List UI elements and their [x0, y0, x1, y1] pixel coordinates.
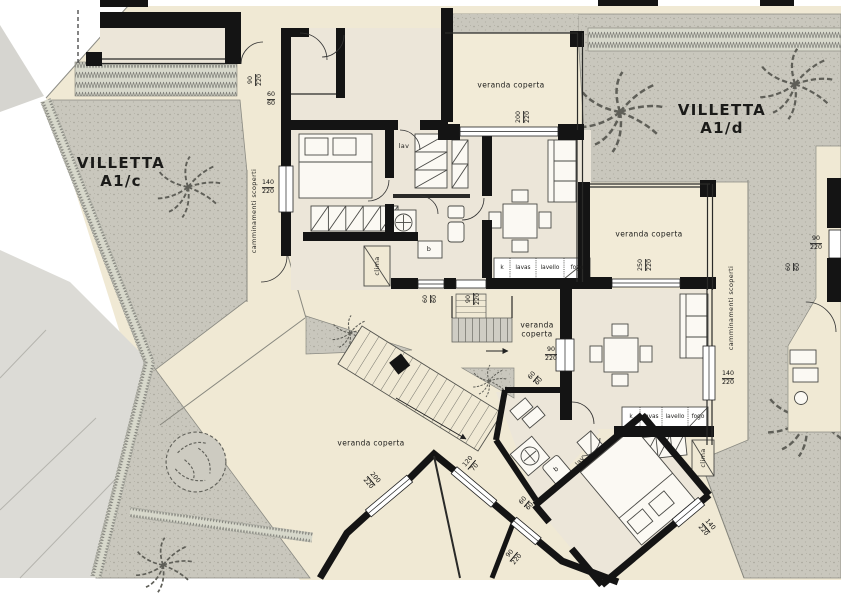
- laundry-right-label: lav: [574, 454, 587, 467]
- dim-60-60: 6060: [527, 371, 544, 387]
- clima-right-label: clima: [699, 448, 707, 467]
- dim-90-220: 90220: [810, 236, 822, 252]
- dim-200-220: 200220: [516, 111, 532, 123]
- kitchen-c-cell-fogo: fogo: [571, 265, 584, 271]
- boiler-right-label: b: [552, 464, 561, 473]
- dim-140-220: 140220: [696, 518, 716, 537]
- villa-right-unit: A1/d: [700, 119, 743, 137]
- dim-60-60: 6060: [267, 92, 275, 108]
- villa-left-name: VILLETTA: [77, 154, 165, 172]
- dim-200-220: 200220: [361, 471, 381, 490]
- dim-140-220: 140220: [722, 371, 734, 387]
- floor-plan-page: VILLETTA A1/c VILLETTA A1/d veranda cope…: [0, 0, 841, 595]
- kitchen-c-cell-lavello: lavello: [541, 265, 560, 271]
- kitchen-d-cell-lavello: lavello: [666, 414, 685, 420]
- dim-90-220: 90220: [466, 293, 482, 305]
- text-overlay: VILLETTA A1/c VILLETTA A1/d veranda cope…: [0, 0, 841, 595]
- dim-60-60: 6060: [423, 295, 439, 303]
- villa-right-name: VILLETTA: [678, 101, 766, 119]
- boiler-left-label: b: [427, 245, 431, 253]
- dim-60-60: 6060: [786, 263, 802, 271]
- dim-90-220: 90220: [504, 547, 524, 566]
- clima-left-label: clima: [373, 256, 381, 275]
- dim-140-220: 140220: [262, 180, 274, 196]
- veranda-bottom-label: veranda coperta: [337, 439, 404, 448]
- laundry-left-label: lav: [399, 142, 410, 150]
- veranda-right-label: veranda coperta: [615, 230, 682, 239]
- dim-120-70: 12070: [462, 455, 482, 474]
- kitchen-d-cell-fogo: fogo: [692, 414, 705, 420]
- kitchen-d-cell-lavas: lavas: [643, 414, 658, 420]
- kitchen-d-cell-k: k: [629, 414, 632, 420]
- veranda-top-label: veranda coperta: [477, 81, 544, 90]
- kitchen-c-cell-lavas: lavas: [515, 265, 530, 271]
- dim-60-60: 6060: [518, 496, 535, 512]
- dim-250-220: 250220: [638, 259, 654, 271]
- dim-90-220: 90220: [248, 74, 264, 86]
- dim-90-220: 90220: [545, 347, 557, 363]
- walkway-right-label: camminamenti scoperti: [727, 266, 735, 350]
- veranda-mid-label-1: veranda: [520, 321, 553, 330]
- villa-left-unit: A1/c: [100, 172, 142, 190]
- walkway-left-label: camminamenti scoperti: [250, 169, 258, 253]
- veranda-mid-label-2: coperta: [521, 330, 552, 339]
- kitchen-c-cell-k: k: [500, 265, 503, 271]
